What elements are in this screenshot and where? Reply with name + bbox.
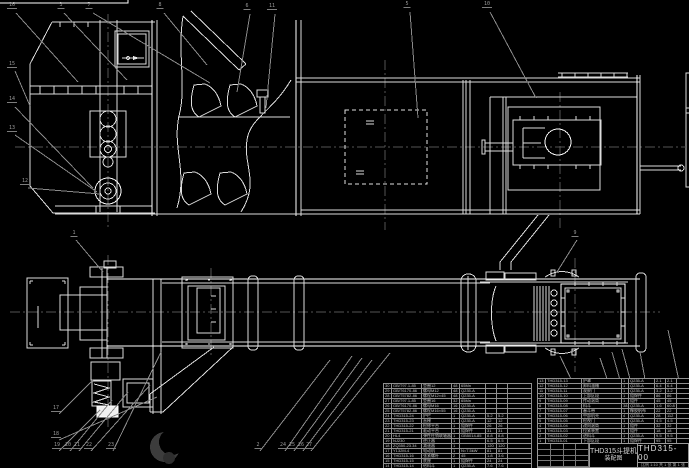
balloon-18: 18 [51, 432, 61, 438]
balloon-19: 19 [52, 443, 62, 449]
balloon-23: 23 [106, 443, 116, 449]
bucket-belt-section [177, 11, 291, 212]
balloon-27: 27 [304, 443, 314, 449]
signature-cell [551, 461, 564, 467]
top-view-elevation [30, 11, 684, 270]
balloon-10: 10 [482, 2, 492, 8]
head-cover-panel [561, 284, 625, 343]
balloon-17: 17 [51, 406, 61, 412]
bom-cell: 1 [452, 464, 460, 468]
bom-cell: 60.8 [666, 404, 677, 409]
drawing-subtitle: 装配图 [604, 456, 622, 463]
balloon-7: 7 [85, 3, 92, 9]
title-block: THD315斗提机 装配图 THD315-00 比例 1:10 共 1 张 第 … [537, 443, 689, 468]
bom-table-left: 30GB/T97.1-85垫圈124865Mn29GB/T6170-86螺母M1… [383, 383, 532, 468]
bom-cell: GB/T5782-86 [392, 394, 422, 399]
drawing-number: THD315-00 [638, 444, 688, 463]
balloon-9: 9 [571, 231, 578, 237]
balloon-16: 16 [7, 3, 17, 9]
bom-cell: 7.6 [486, 464, 497, 468]
balloon-3: 3 [57, 3, 64, 9]
drawing-title: THD315斗提机 [590, 448, 637, 456]
balloon-21: 21 [72, 443, 82, 449]
bom-cell: 38 [622, 404, 629, 409]
bom-cell: THD315-14 [392, 464, 422, 468]
signature-cell [576, 461, 589, 467]
signature-cell [564, 461, 577, 467]
bom-cell: 7.6 [497, 464, 508, 468]
title-block-note: 比例 1:10 共 1 张 第 1 张 [638, 463, 688, 467]
bom-cell [508, 464, 532, 468]
bom-cell: GB/T6170-86 [392, 404, 422, 409]
flow-arrow-icon [133, 56, 139, 60]
boot-plan [27, 261, 123, 358]
bom-cell: 给料斗 [422, 464, 452, 468]
middle-casing-elevation [55, 78, 640, 214]
balloon-2: 2 [254, 443, 261, 449]
balloon-11: 11 [267, 4, 277, 10]
balloon-12: 12 [20, 179, 30, 185]
cad-drawing-sheet: 1637861151015141312117181920212223224252… [0, 0, 689, 468]
balloon-5: 5 [403, 2, 410, 8]
screw-takeup-unit [91, 362, 153, 417]
section-pointer [640, 165, 684, 171]
drawing-number-cell: THD315-00 比例 1:10 共 1 张 第 1 张 [638, 444, 688, 467]
bom-cell: 14 [384, 464, 392, 468]
bom-table-right: 13THD315-13护罩1Q235-A2.12.112THD315-12卸料溜… [537, 378, 689, 450]
discharge-spout [500, 215, 549, 270]
balloon-14: 14 [7, 97, 17, 103]
centerlines [10, 14, 686, 430]
bom-cell: 弹性柱销联轴器 [422, 434, 452, 439]
signature-cell [538, 461, 551, 467]
signature-grid [538, 444, 590, 467]
balloon-8: 8 [156, 3, 163, 9]
watermark-crescent-logo [150, 429, 185, 464]
inspection-door-plan [182, 277, 233, 348]
balloon-13: 13 [7, 126, 17, 132]
balloon-15: 15 [7, 62, 17, 68]
bom-cell: GB/T6170-86 [392, 389, 422, 394]
balloon-22: 22 [84, 443, 94, 449]
bom-row: 14THD315-14给料斗1Q235-A7.67.6 [384, 464, 532, 468]
head-drive-section [482, 73, 684, 214]
bom-cell: Q235-A [460, 464, 486, 468]
drive-pulley-circle [545, 129, 571, 155]
bom-cell: GB/T5782-86 [392, 409, 422, 414]
balloon-1: 1 [70, 231, 77, 237]
drawing-title-cell: THD315斗提机 装配图 [590, 444, 638, 467]
balloon-6: 6 [243, 4, 250, 10]
